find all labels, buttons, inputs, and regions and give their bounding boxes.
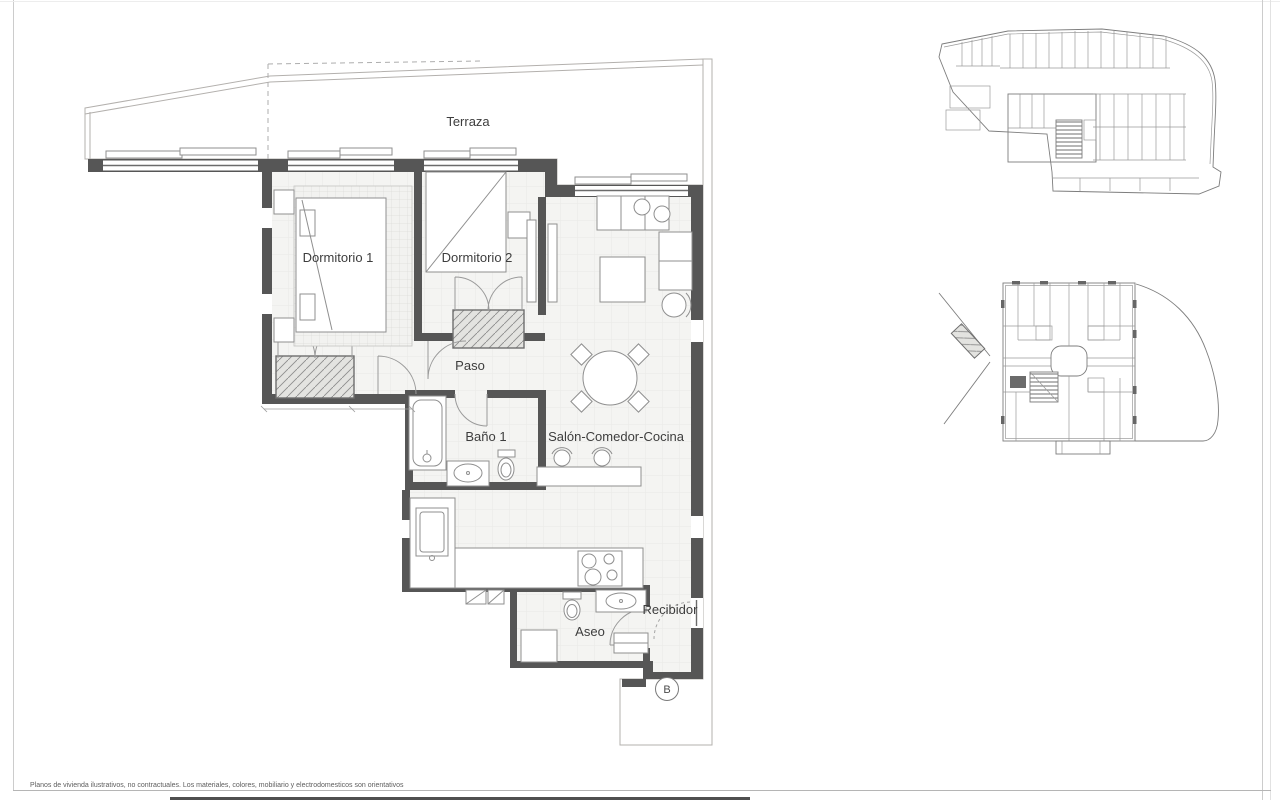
room-label-dormitorio1: Dormitorio 1 [303, 250, 374, 265]
bathtub-icon [409, 396, 446, 470]
key-plan-garage [939, 29, 1221, 194]
shower-mat-icon [521, 630, 557, 662]
dimension-ticks [261, 406, 415, 412]
room-label-paso: Paso [455, 358, 485, 373]
key-plan-typical-floor [939, 281, 1218, 454]
room-label-dormitorio2: Dormitorio 2 [442, 250, 513, 265]
unit-badge: B [656, 678, 679, 701]
washer-icon [466, 590, 504, 604]
bed1-icon [296, 198, 386, 332]
room-label-terraza: Terraza [446, 114, 490, 129]
nightstand-icon [274, 318, 294, 342]
aseo-toilet-icon [563, 592, 581, 620]
stove-icon [578, 551, 622, 586]
wardrobe-dorm1-icon [276, 356, 354, 398]
dining-table-icon [571, 344, 649, 412]
disclaimer-text: Planos de vivienda ilustrativos, no cont… [30, 782, 404, 789]
room-label-aseo: Aseo [575, 624, 605, 639]
plan-page: Terraza Dormitorio 1 Dormitorio 2 Paso B… [0, 0, 1280, 800]
aseo-sink-icon [596, 590, 646, 612]
desk-icon [527, 220, 536, 302]
nightstand-icon [274, 190, 294, 214]
hall-bench-icon [614, 633, 648, 653]
unit-badge-label: B [663, 684, 670, 696]
room-label-bano1: Baño 1 [465, 429, 506, 444]
toilet-icon [498, 450, 515, 480]
main-floor-plan: Terraza Dormitorio 1 Dormitorio 2 Paso B… [85, 59, 712, 745]
room-label-salon: Salón-Comedor-Cocina [548, 429, 685, 444]
footer: Planos de vivienda ilustrativos, no cont… [13, 782, 1271, 800]
tv-bench-icon [548, 224, 557, 302]
room-label-recibidor: Recibidor [643, 602, 699, 617]
bathroom-sink-icon [447, 461, 489, 486]
plan-sheet: Terraza Dormitorio 1 Dormitorio 2 Paso B… [0, 0, 1280, 800]
wardrobe-dorm2-icon [453, 310, 524, 348]
coffee-table-icon [600, 257, 645, 302]
